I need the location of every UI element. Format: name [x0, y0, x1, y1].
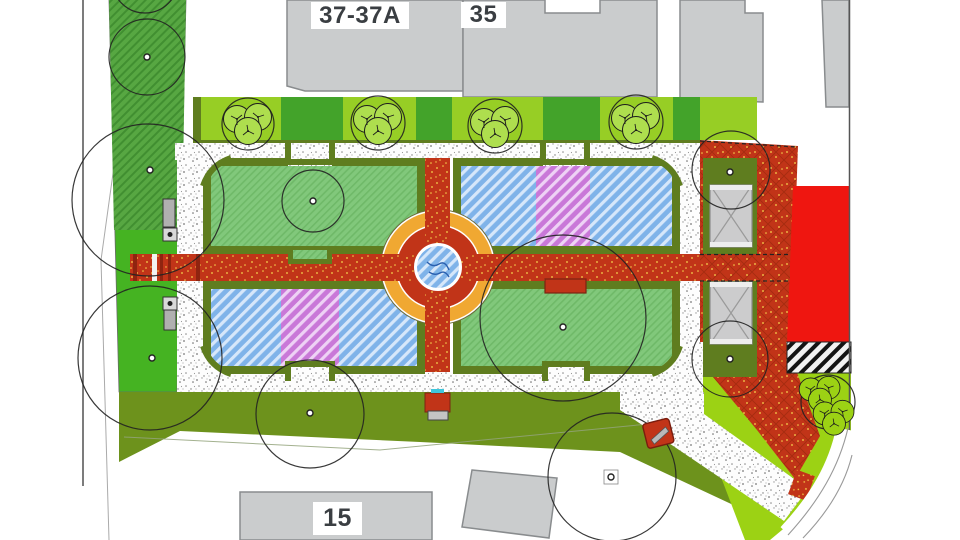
building-label-35: 35: [461, 2, 506, 28]
red-path-tab: [545, 279, 586, 293]
flower-bed-purple: [281, 289, 339, 366]
building-far-right-footprint: [822, 0, 849, 107]
site-plan-drawing: [0, 0, 960, 540]
flower-bed-purple: [536, 166, 590, 246]
building-top-right-footprint: [680, 0, 763, 102]
building-red-footprint: [787, 186, 850, 342]
building-label-37-37a: 37-37A: [311, 2, 409, 29]
path-stub-south: [425, 393, 450, 412]
building-label-15: 15: [313, 502, 362, 535]
site-plan: 37-37A 35 15: [0, 0, 960, 540]
bench-upper-left: [163, 199, 177, 241]
pergola-top: [710, 185, 752, 247]
fountain-pool: [416, 245, 461, 290]
bench-lower-left: [163, 297, 177, 330]
building-bottom-right-footprint: [462, 470, 557, 538]
bench-marker-cyan: [431, 389, 444, 393]
bench-south-path: [428, 411, 448, 420]
pergola-bottom: [710, 282, 752, 344]
play-equipment: [642, 418, 674, 449]
hatched-paving-strip: [787, 342, 851, 373]
flower-bed-blue: [590, 166, 672, 246]
